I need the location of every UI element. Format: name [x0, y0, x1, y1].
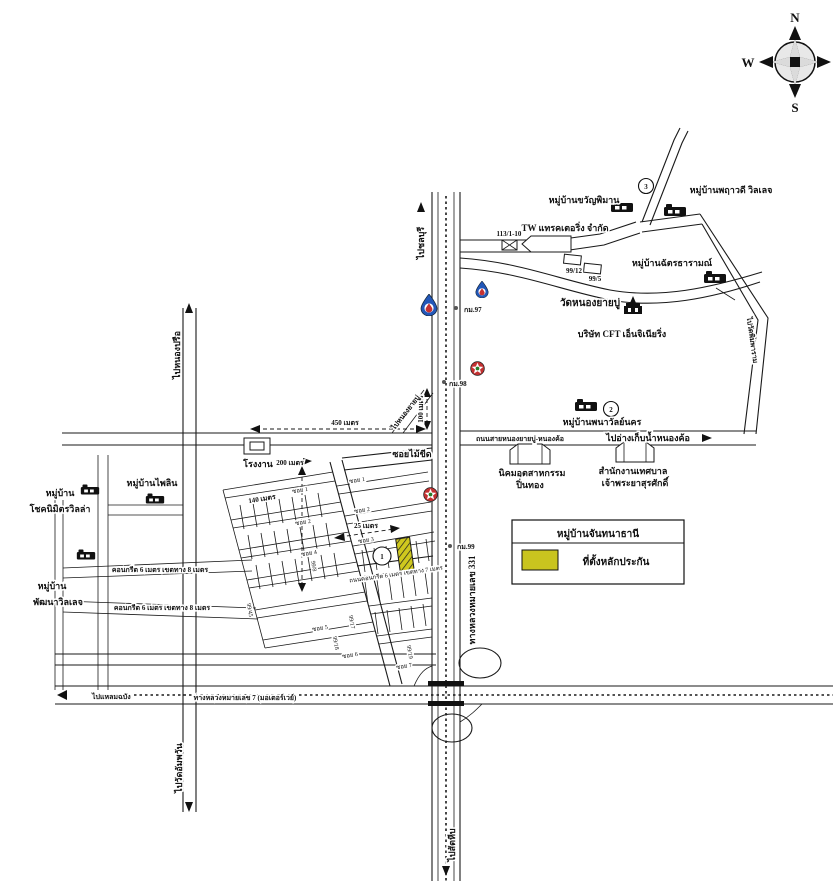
factory-label: โรงงาน — [242, 458, 274, 469]
to-chonburi-label: ไปชลบุรี — [415, 227, 427, 261]
compass-icon: N S W E — [742, 10, 833, 115]
highway331-label: ทางหลวงหมายเลข 331 — [467, 555, 477, 644]
soi7-label: ซอย 7 — [396, 662, 413, 671]
village-phanawan-icon — [575, 399, 597, 411]
house-9912-icon — [564, 254, 582, 265]
tw-factory-icon — [522, 236, 571, 252]
to-laem-chabang-label: ไปแหลมฉบัง — [91, 692, 131, 701]
arrow-up-chonburi — [417, 202, 425, 212]
legend-site-label: ที่ตั้งหลักประกัน — [583, 554, 650, 568]
village-choknimit-label-2: โชคนิมิตรวิลล่า — [29, 503, 91, 514]
house-9912-label: 99/12 — [566, 267, 582, 275]
motorway-label: ทางหลวงหมายเลข 7 (มอเตอร์เวย์) — [194, 693, 297, 702]
village-khwan-phiman-label: หมู่บ้านขวัญพิมาน — [549, 195, 621, 206]
highway-331-road — [432, 192, 460, 881]
arrow-up-nongprue — [185, 303, 193, 313]
to-sattahip-label: ไปสัตหีบ — [446, 828, 457, 863]
collateral-site-lot — [396, 537, 414, 572]
house-113-label: 113/1-10 — [497, 230, 522, 238]
to-nong-prue-label: ไปหนองปรือ — [171, 331, 182, 380]
pinthong-label-1: นิคมอุตสาหกรรม — [498, 468, 565, 479]
municipality-label-2: เจ้าพระยาสุรศักดิ์ — [602, 476, 670, 489]
km98-label: กม.98 — [449, 380, 467, 388]
to-wat-ampawan-label: ไปวัดอัมพวัน — [173, 742, 184, 793]
soi-mai-kheed-label: ซอยไม้ขีด — [392, 448, 431, 459]
lot-9919-label: 99/19 — [405, 645, 413, 660]
village-pailin-label: หมู่บ้านไพลิน — [127, 477, 179, 489]
arrow-right-nongkho — [702, 434, 712, 442]
km98-dot — [442, 380, 446, 384]
lot-9945-label: 99/45 — [245, 603, 253, 618]
concrete-road-7m-label: ถนนคอนกรีต 6 เมตร เขตทาง 7 เมตร — [349, 563, 444, 584]
lot-9917-label: 99/17 — [347, 615, 355, 630]
cft-company-label: บริษัท CFT เอ็นจิเนียริ่ง — [578, 327, 666, 339]
temple-icon — [624, 296, 642, 314]
village-pattana-icon — [77, 550, 95, 560]
village-choknimit-label-1: หมู่บ้าน — [46, 488, 76, 499]
concrete-road-8m-label-2: คอนกรีต 6 เมตร เขตทาง 8 เมตร — [114, 604, 211, 612]
soi3-right-label: ซอย 3 — [358, 536, 375, 545]
village-pharuethawadee-label: หมู่บ้านพฤาวดี วิลเลจ — [690, 185, 773, 196]
compass-s-label: S — [791, 100, 798, 115]
soi2-left-label: ซอย 2 — [295, 518, 312, 527]
village-chat-tharam-icon — [704, 271, 726, 283]
star-marker-icon — [471, 362, 485, 376]
lot-9918-label: 99/18 — [331, 636, 339, 651]
arrow-down-sattahip — [442, 866, 450, 876]
village-pattana-label-1: หมู่บ้าน — [38, 581, 68, 592]
village-pharuethawadee-icon — [664, 204, 686, 216]
badge-2: 2 — [609, 406, 613, 414]
distance-200m-label: 200 เมตร — [276, 459, 304, 467]
km97-dot — [454, 306, 458, 310]
arrow-down-ampawan — [185, 802, 193, 812]
distance-140m-label: 140 เมตร — [248, 493, 277, 505]
soi5-label: ซอย 5 — [312, 624, 329, 633]
pinthong-label-2: ปิ่นทอง — [515, 478, 544, 490]
soi2-right-label: ซอย 2 — [354, 506, 371, 515]
village-phanawan-label: หมู่บ้านพนาวัลย์นคร — [563, 416, 642, 428]
road-network — [55, 128, 833, 881]
badge-3: 3 — [644, 183, 648, 191]
soi1-right-label: ซอย 1 — [349, 476, 366, 485]
compass-w-label: W — [742, 55, 755, 70]
arrow-left-laemchabang — [57, 690, 67, 700]
municipality-icon — [616, 442, 654, 462]
km97-label: กม.97 — [464, 306, 482, 314]
legend-box: หมู่บ้านจันทนาธานี ที่ตั้งหลักประกัน — [512, 520, 684, 584]
km99-dot — [448, 544, 452, 548]
nongkho-road-label: ถนนสายหนองยายบู่-หนองค้อ — [476, 434, 564, 444]
star-marker-icon — [424, 488, 438, 502]
badge-1: 1 — [380, 553, 384, 561]
wat-nong-yai-bu-label: วัดหนองยายบู่ — [560, 297, 620, 310]
subdivision-roads — [223, 448, 435, 686]
km99-label: กม.99 — [457, 543, 475, 551]
arrow-right-200m — [303, 458, 312, 465]
tw-factory-label: TW แทรคเตอริ่ง จำกัด — [521, 221, 608, 233]
fuel-station-icon — [421, 294, 437, 316]
bridge-icon — [428, 681, 464, 686]
to-nong-kho-label: ไปอ่างเก็บน้ำหนองค้อ — [605, 431, 690, 443]
village-chat-tharam-label: หมู่บ้านฉัตรธารามณ์ — [632, 257, 713, 269]
distance-450m-label: 450 เมตร — [331, 419, 359, 427]
soi6-label: ซอย 6 — [342, 651, 359, 660]
distance-25m-label: 25 เมตร — [354, 522, 378, 530]
house-995-icon — [584, 263, 602, 274]
village-choknimit-icon — [81, 485, 99, 495]
pinthong-icon — [510, 444, 550, 464]
concrete-road-8m-label-1: คอนกรีต 6 เมตร เขตทาง 8 เมตร — [112, 566, 209, 574]
compass-n-label: N — [790, 10, 800, 25]
village-pailin-icon — [146, 494, 164, 504]
fuel-station-icon — [476, 281, 488, 298]
municipality-label-1: สำนักงานเทศบาล — [599, 466, 668, 476]
soi4-left-label: ซอย 4 — [301, 549, 318, 558]
legend-title: หมู่บ้านจันทนาธานี — [557, 528, 639, 541]
map-canvas: 3 2 1 ไปชลบุรี ไปสัตหีบ ทางหลวงหมายเลข 3… — [0, 0, 833, 881]
house-995-label: 99/5 — [589, 275, 602, 283]
village-pattana-label-2: พัฒนาวิลเลจ — [33, 597, 83, 607]
legend-site-swatch — [522, 550, 558, 570]
